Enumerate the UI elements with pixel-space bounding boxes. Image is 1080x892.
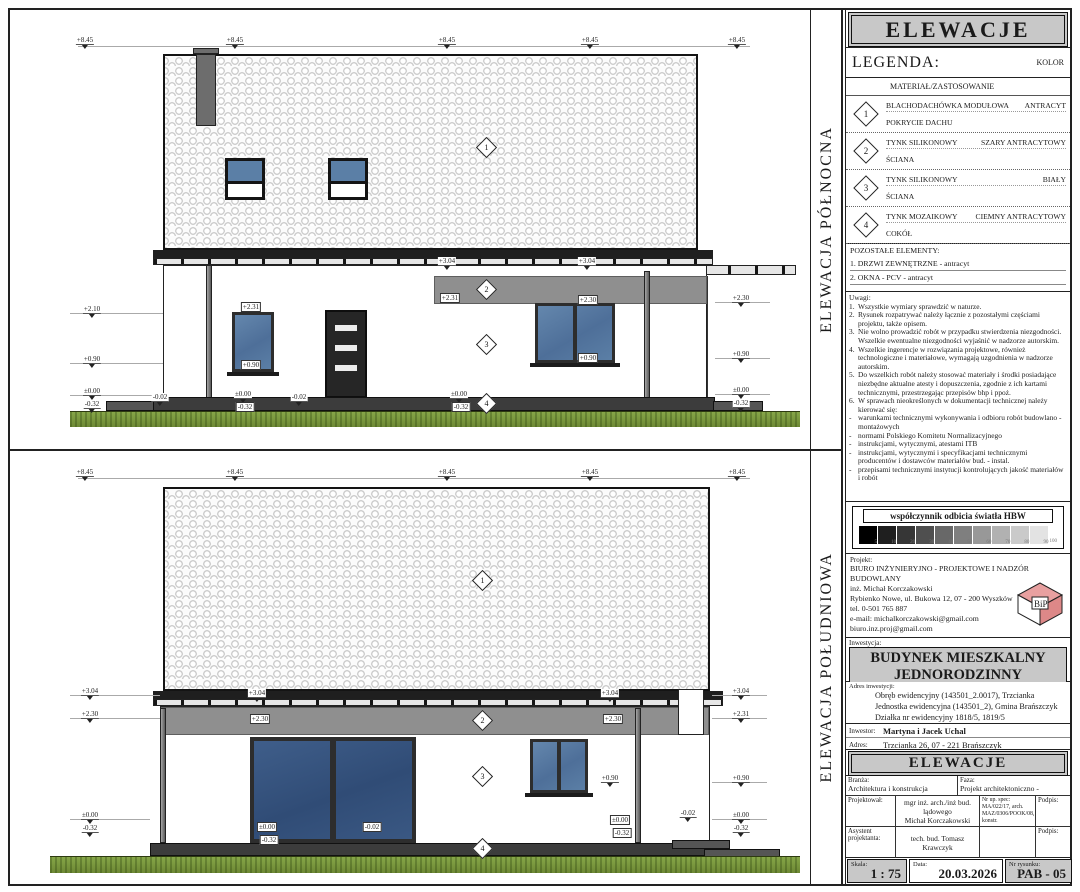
podpis-label: Podpis:: [1036, 796, 1070, 826]
inwestor-address: Trzcianka 26, 07 - 221 Brańszczyk: [883, 740, 1002, 750]
rafter-ends: [153, 258, 713, 265]
dimension-arrow: [607, 783, 613, 787]
sheet-title: ELEWACJE: [848, 12, 1068, 47]
dimension-label: +0.90: [732, 350, 750, 363]
dimension-arrow: [738, 833, 744, 837]
dimension-arrow: [87, 719, 93, 723]
investment-title-line1: BUDYNEK MIESZKALNY: [850, 650, 1066, 667]
dimension-label: -0.32: [613, 828, 632, 838]
plinth: [150, 843, 712, 856]
dimension-label: +2.31: [241, 302, 261, 312]
drawing-sheet: +8.45+8.45+8.45+8.45+8.45+3.04+3.04+2.31…: [8, 8, 1072, 886]
dimension-label: ±0.00: [610, 815, 630, 825]
legend-application: ŚCIANA: [886, 155, 1066, 164]
hbw-scale: 5102030405060708090100: [857, 526, 1059, 544]
roof-window-glass: [331, 161, 365, 184]
hbw-swatch: 50: [954, 526, 972, 544]
ground-grass: [50, 856, 800, 873]
wall-corner-line: [707, 276, 708, 397]
remaining-elements-section: POZOSTAŁE ELEMENTY: 1. DRZWI ZEWNĘTRZNE …: [846, 244, 1070, 292]
dimension-arrow: [738, 696, 744, 700]
south-elevation-panel: +8.45+8.45+8.45+8.45+8.45+3.04+2.30±0.00…: [10, 451, 843, 884]
drawing-title: ELEWACJE: [848, 751, 1068, 776]
window-sill: [525, 793, 593, 797]
dimension-label: -0.32: [452, 402, 471, 412]
note-bullet: -instrukcjami, wytycznymi i specyfikacja…: [849, 449, 1067, 466]
hbw-section: współczynnik odbicia światła HBW 5102030…: [846, 502, 1070, 554]
dimension-label: +2.31: [732, 710, 750, 723]
dimension-arrow: [82, 45, 88, 49]
dimension-label: +3.04: [601, 689, 619, 702]
dimension-label: +2.30: [81, 710, 99, 723]
legend-color: BIAŁY: [1043, 175, 1066, 184]
footer-section: Skala: 1 : 75 Data: 20.03.2026 Nr rysunk…: [846, 858, 1070, 884]
south-label-strip: ELEWACJA POŁUDNIOWA: [810, 451, 842, 884]
window-double: [535, 303, 615, 363]
legend-application: POKRYCIE DACHU: [886, 118, 1066, 127]
dimension-label: -0.02: [363, 822, 382, 832]
roof-window: [328, 158, 368, 200]
hbw-title: współczynnik odbicia światła HBW: [863, 509, 1053, 523]
dimension-label: -0.32: [260, 835, 279, 845]
dimension-arrow: [738, 408, 744, 412]
dimension-label: +3.04: [248, 689, 266, 702]
investment-title: BUDYNEK MIESZKALNY JEDNORODZINNY: [849, 647, 1067, 687]
dimension-label: -0.32: [82, 824, 99, 837]
hbw-swatch: 90: [1030, 526, 1048, 544]
note-item: 4.Wszelkie ingerencje w rozwiązania proj…: [849, 346, 1067, 372]
adres-label: Adres:: [846, 741, 883, 749]
note-item: 6.W sprawach nieokreślonych w dokumentac…: [849, 397, 1067, 414]
dimension-arrow: [738, 303, 744, 307]
dimension-label: +8.45: [581, 36, 599, 49]
remaining-element: 1. DRZWI ZEWNĘTRZNE - antracyt: [850, 257, 1066, 271]
dimension-label: -0.02: [291, 393, 308, 406]
legend-material: BLACHODACHÓWKA MODUŁOWA: [886, 101, 1009, 110]
legend-header: LEGENDA: KOLOR: [846, 48, 1070, 78]
entrance-door: [325, 310, 367, 398]
legend-material: TYNK SILIKONOWY: [886, 138, 958, 147]
date-value: 20.03.2026: [913, 866, 999, 882]
wall-corner-return: [678, 689, 704, 735]
dimension-label: +8.45: [438, 36, 456, 49]
legend-title: LEGENDA:: [852, 54, 940, 72]
gray-plaster-band: [161, 707, 709, 735]
dimension-arrow: [87, 833, 93, 837]
notes-list: 1.Wszystkie wymiary sprawdzić w naturze.…: [849, 303, 1067, 483]
asystent-license: [980, 827, 1036, 858]
dimension-label: +2.10: [83, 305, 101, 318]
hbw-swatch: 70: [992, 526, 1010, 544]
projektowal-name: mgr inż. arch./inż bud. lądowego Michał …: [896, 796, 980, 826]
projekt-label: Projekt:: [850, 556, 1066, 564]
legend-color-header: KOLOR: [1036, 58, 1064, 67]
scale-value: 1 : 75: [851, 866, 903, 882]
hbw-swatch: 10: [878, 526, 896, 544]
note-bullet: -przepisami technicznymi instytucji kont…: [849, 466, 1067, 483]
dimension-label: +8.45: [226, 36, 244, 49]
legend-color: ANTRACYT: [1025, 101, 1066, 110]
note-item: 3.Nie wolno prowadzić robót w przypadku …: [849, 328, 1067, 345]
dimension-arrow: [296, 402, 302, 406]
legend-item-number: 4: [853, 212, 878, 237]
dimension-label: ±0.00: [83, 387, 101, 400]
legend-rows: 1BLACHODACHÓWKA MODUŁOWAANTRACYTPOKRYCIE…: [846, 96, 1070, 244]
dimension-label: ±0.00: [732, 386, 750, 399]
eaves-fascia: [153, 691, 723, 699]
window-mullion: [573, 306, 577, 360]
drawing-title-section: ELEWACJE: [846, 750, 1070, 776]
drawing-number-box: Nr rysunku: PAB - 05: [1005, 859, 1072, 883]
south-elevation-title: ELEWACJA POŁUDNIOWA: [818, 552, 836, 782]
roof-window-glass: [228, 161, 262, 184]
license-line: MA/022/17, arch.: [982, 804, 1033, 811]
notes-section: Uwagi: 1.Wszystkie wymiary sprawdzić w n…: [846, 292, 1070, 502]
gray-plaster-band: [434, 276, 707, 304]
dimension-arrow: [232, 477, 238, 481]
branza-value: Architektura i konstrukcja: [848, 784, 955, 793]
dimension-label: +0.90: [83, 355, 101, 368]
dimension-label: -0.02: [680, 809, 697, 822]
address-line: Działka nr ewidencyjny 1818/5, 1819/5: [849, 712, 1067, 723]
dimension-label: +8.45: [581, 468, 599, 481]
company-logo: BiP: [1014, 581, 1066, 631]
address-line: Jednostka ewidencyjna (143501_2), Gmina …: [849, 701, 1067, 712]
dimension-label: +8.45: [728, 36, 746, 49]
asystent-name: tech. bud. Tomasz Krawczyk: [896, 827, 980, 858]
legend-application: ŚCIANA: [886, 192, 1066, 201]
dimension-label: +8.45: [76, 468, 94, 481]
projektowal-line2: Michał Korczakowski: [898, 816, 977, 825]
south-elevation-drawing: +8.45+8.45+8.45+8.45+8.45+3.04+2.30±0.00…: [10, 451, 810, 884]
remaining-elements-title: POZOSTAŁE ELEMENTY:: [850, 246, 1066, 257]
terrace-steps: [672, 840, 730, 849]
dimension-arrow: [89, 314, 95, 318]
dimension-arrow: [82, 477, 88, 481]
title-block: ELEWACJE LEGENDA: KOLOR MATERIAŁ/ZASTOSO…: [845, 10, 1070, 884]
dimension-label: +2.30: [732, 294, 750, 307]
legend-item: 4TYNK MOZAIKOWYCIEMNY ANTRACYTOWYCOKÓŁ: [846, 207, 1070, 244]
entrance-steps: [106, 401, 154, 411]
dimension-label: ±0.00: [257, 822, 277, 832]
dimension-label: -0.02: [152, 393, 169, 406]
hbw-swatch: 60: [973, 526, 991, 544]
dimension-arrow: [232, 45, 238, 49]
inwestycja-label: Inwestycja:: [849, 639, 1067, 647]
dimension-label: +0.90: [732, 774, 750, 787]
legend-item-number: 3: [853, 175, 878, 200]
dimension-label: +8.45: [438, 468, 456, 481]
chimney: [196, 54, 216, 126]
dimension-label: +3.04: [438, 257, 456, 270]
hbw-swatch: 40: [935, 526, 953, 544]
dimension-label: ±0.00: [81, 811, 99, 824]
dimension-label: +3.04: [81, 687, 99, 700]
level-line: [78, 478, 750, 479]
inwestor-name: Martyna i Jacek Uchal: [883, 726, 966, 736]
dimension-label: ±0.00: [732, 811, 750, 824]
projektowal-line1: mgr inż. arch./inż bud. lądowego: [898, 798, 977, 816]
dimension-label: +8.45: [728, 468, 746, 481]
dimension-arrow: [734, 45, 740, 49]
rafter-ends: [153, 699, 723, 706]
note-bullet: -warunkami technicznymi wykonywania i od…: [849, 414, 1067, 431]
dimension-label: +0.90: [601, 774, 619, 787]
legend-item: 2TYNK SILIKONOWYSZARY ANTRACYTOWYŚCIANA: [846, 133, 1070, 170]
downpipe: [160, 708, 166, 843]
scale-box: Skala: 1 : 75: [847, 859, 907, 883]
material-header: MATERIAŁ/ZASTOSOWANIE: [890, 82, 994, 91]
note-item: 5.Do wszelkich robót należy stosować mat…: [849, 371, 1067, 397]
eaves-fascia: [153, 250, 713, 258]
roof-south: [163, 487, 710, 691]
asystent-label: Asystent projektanta:: [846, 827, 896, 858]
dimension-label: -0.32: [84, 400, 101, 413]
remaining-element: 2. OKNA - PCV - antracyt: [850, 271, 1066, 285]
investment-section: Inwestycja: BUDYNEK MIESZKALNY JEDNORODZ…: [846, 638, 1070, 682]
dimension-label: +3.04: [732, 687, 750, 700]
hbw-swatch: 5: [859, 526, 877, 544]
roof-north: [163, 54, 698, 250]
address-line: Obręb ewidencyjny (143501_2.0017), Trzci…: [849, 690, 1067, 701]
dimension-arrow: [89, 409, 95, 413]
dimension-label: -0.32: [236, 402, 255, 412]
dimension-arrow: [587, 477, 593, 481]
legend-item-number: 2: [853, 138, 878, 163]
dimension-label: +0.90: [241, 360, 261, 370]
dimension-label: +2.31: [440, 293, 460, 303]
hbw-swatch: 80: [1011, 526, 1029, 544]
legend-item: 3TYNK SILIKONOWYBIAŁYŚCIANA: [846, 170, 1070, 207]
dimension-label: +2.30: [250, 714, 270, 724]
dimension-label: +2.30: [603, 714, 623, 724]
dimension-label: +0.90: [578, 353, 598, 363]
dimension-arrow: [89, 364, 95, 368]
dimension-label: +8.45: [76, 36, 94, 49]
door-mullion: [330, 741, 336, 839]
faza-label: Faza:: [960, 777, 1068, 784]
legend-item: 1BLACHODACHÓWKA MODUŁOWAANTRACYTPOKRYCIE…: [846, 96, 1070, 133]
date-box: Data: 20.03.2026: [909, 859, 1003, 883]
dimension-arrow: [734, 477, 740, 481]
faza-value: Projekt architektoniczno - budowlany: [960, 784, 1068, 795]
roof-window: [225, 158, 265, 200]
elevation-sheet: { "north": { "vertical_label": "ELEWACJA…: [0, 0, 1080, 892]
dimension-label: +2.30: [578, 295, 598, 305]
hbw-swatch: 20: [897, 526, 915, 544]
dimension-arrow: [444, 266, 450, 270]
north-elevation-drawing: +8.45+8.45+8.45+8.45+8.45+3.04+3.04+2.31…: [10, 10, 810, 449]
window-double: [530, 739, 588, 793]
svg-text:BiP: BiP: [1034, 599, 1048, 609]
dimension-arrow: [444, 45, 450, 49]
drawing-number-value: PAB - 05: [1009, 866, 1068, 882]
legend-color: SZARY ANTRACYTOWY: [981, 138, 1066, 147]
downpipe: [635, 708, 641, 843]
legend-application: COKÓŁ: [886, 229, 1066, 238]
north-elevation-title: ELEWACJA PÓŁNOCNA: [818, 126, 836, 333]
dimension-arrow: [607, 698, 613, 702]
remaining-elements-lines: 1. DRZWI ZEWNĘTRZNE - antracyt2. OKNA - …: [850, 257, 1066, 285]
investor-section: Inwestor: Martyna i Jacek Uchal Adres: T…: [846, 724, 1070, 750]
dimension-arrow: [738, 783, 744, 787]
projektowal-label: Projektował:: [846, 796, 896, 826]
dimension-label: -0.32: [733, 824, 750, 837]
license-line: MAZ/0306/POOK/08, konstr.: [982, 811, 1033, 825]
dimension-label: +8.45: [226, 468, 244, 481]
window-sill: [530, 363, 620, 367]
downpipe: [206, 265, 212, 398]
downpipe: [644, 271, 650, 398]
address-label: Adres inwestycji:: [849, 683, 1067, 690]
level-line: [78, 46, 750, 47]
dimension-arrow: [584, 266, 590, 270]
legend-material: TYNK SILIKONOWY: [886, 175, 958, 184]
signature-table: Branża: Architektura i konstrukcja Faza:…: [846, 776, 1070, 858]
license-number: Nr up. spec:MA/022/17, arch.MAZ/0306/POO…: [980, 796, 1036, 826]
north-label-strip: ELEWACJA PÓŁNOCNA: [810, 10, 842, 449]
dimension-arrow: [738, 359, 744, 363]
dimension-arrow: [254, 698, 260, 702]
legend-column-header: MATERIAŁ/ZASTOSOWANIE: [846, 78, 1070, 96]
dimension-arrow: [444, 477, 450, 481]
dimension-arrow: [87, 696, 93, 700]
inwestor-label: Inwestor:: [846, 727, 883, 735]
design-office-section: Projekt: BIURO INŻYNIERYJNO - PROJEKTOWE…: [846, 554, 1070, 638]
dimension-arrow: [157, 402, 163, 406]
legend-color: CIEMNY ANTRACYTOWY: [976, 212, 1067, 221]
note-item: 2.Rysunek rozpatrywać należy łącznie z p…: [849, 311, 1067, 328]
window-mullion: [557, 742, 561, 790]
hbw-box: współczynnik odbicia światła HBW 5102030…: [852, 506, 1064, 549]
dimension-label: +3.04: [578, 257, 596, 270]
dimension-label: -0.32: [733, 399, 750, 412]
legend-item-number: 1: [853, 101, 878, 126]
hbw-swatch: 30: [916, 526, 934, 544]
north-elevation-panel: +8.45+8.45+8.45+8.45+8.45+3.04+3.04+2.31…: [10, 10, 843, 451]
address-lines: Obręb ewidencyjny (143501_2.0017), Trzci…: [849, 690, 1067, 723]
sheet-title-section: ELEWACJE: [846, 10, 1070, 48]
legend-material: TYNK MOZAIKOWY: [886, 212, 958, 221]
dimension-arrow: [685, 818, 691, 822]
dimension-arrow: [738, 719, 744, 723]
podpis2-label: Podpis:: [1036, 827, 1070, 858]
ground-grass: [70, 411, 800, 427]
license-line: Nr up. spec:: [982, 797, 1033, 804]
door-glazing: [335, 325, 356, 372]
branza-label: Branża:: [848, 777, 955, 784]
window-sill: [227, 372, 279, 376]
investment-address-section: Adres inwestycji: Obręb ewidencyjny (143…: [846, 682, 1070, 724]
dimension-arrow: [587, 45, 593, 49]
